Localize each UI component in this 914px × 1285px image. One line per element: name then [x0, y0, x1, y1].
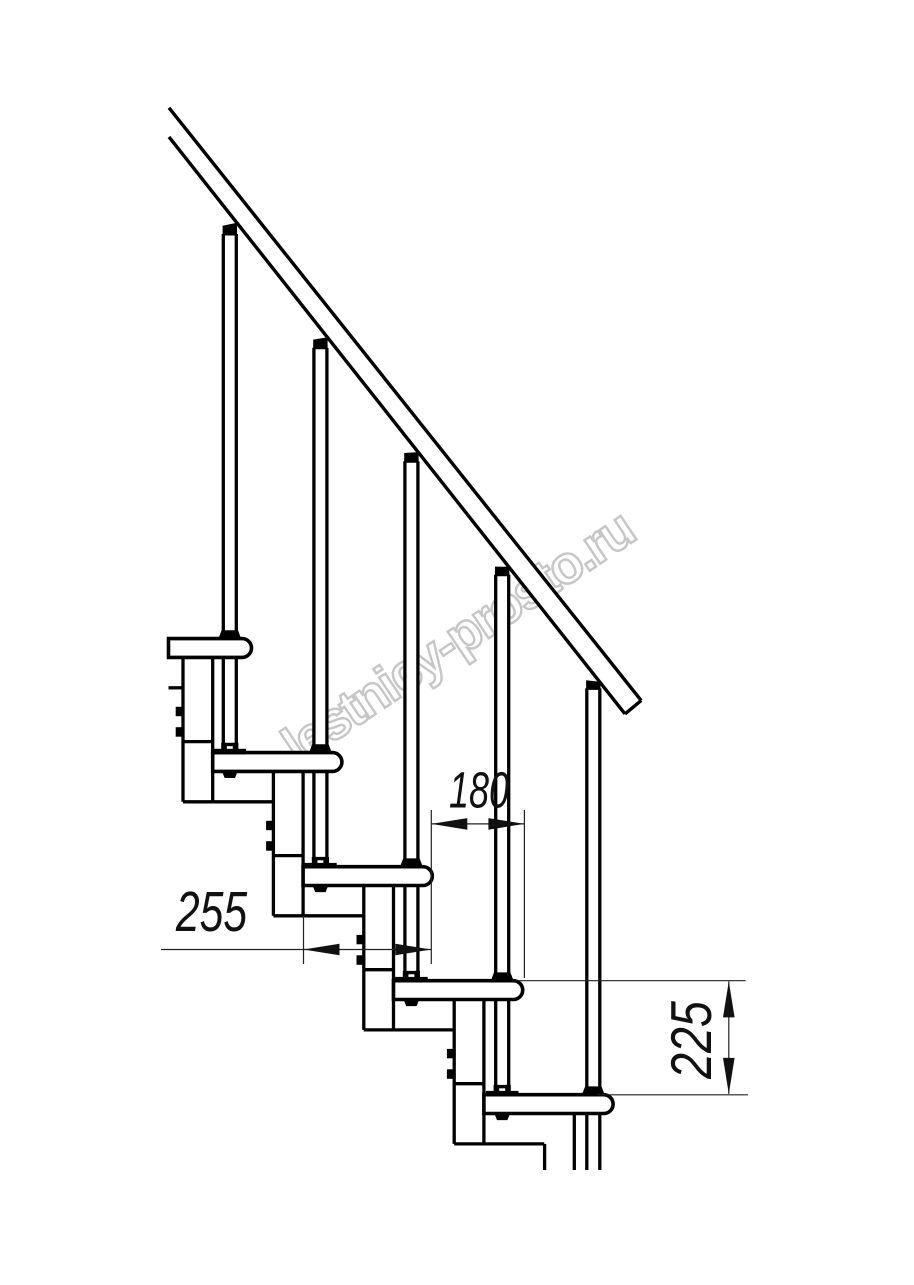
svg-text:180: 180 — [449, 762, 509, 819]
svg-text:255: 255 — [175, 879, 248, 943]
svg-text:225: 225 — [660, 1000, 724, 1079]
